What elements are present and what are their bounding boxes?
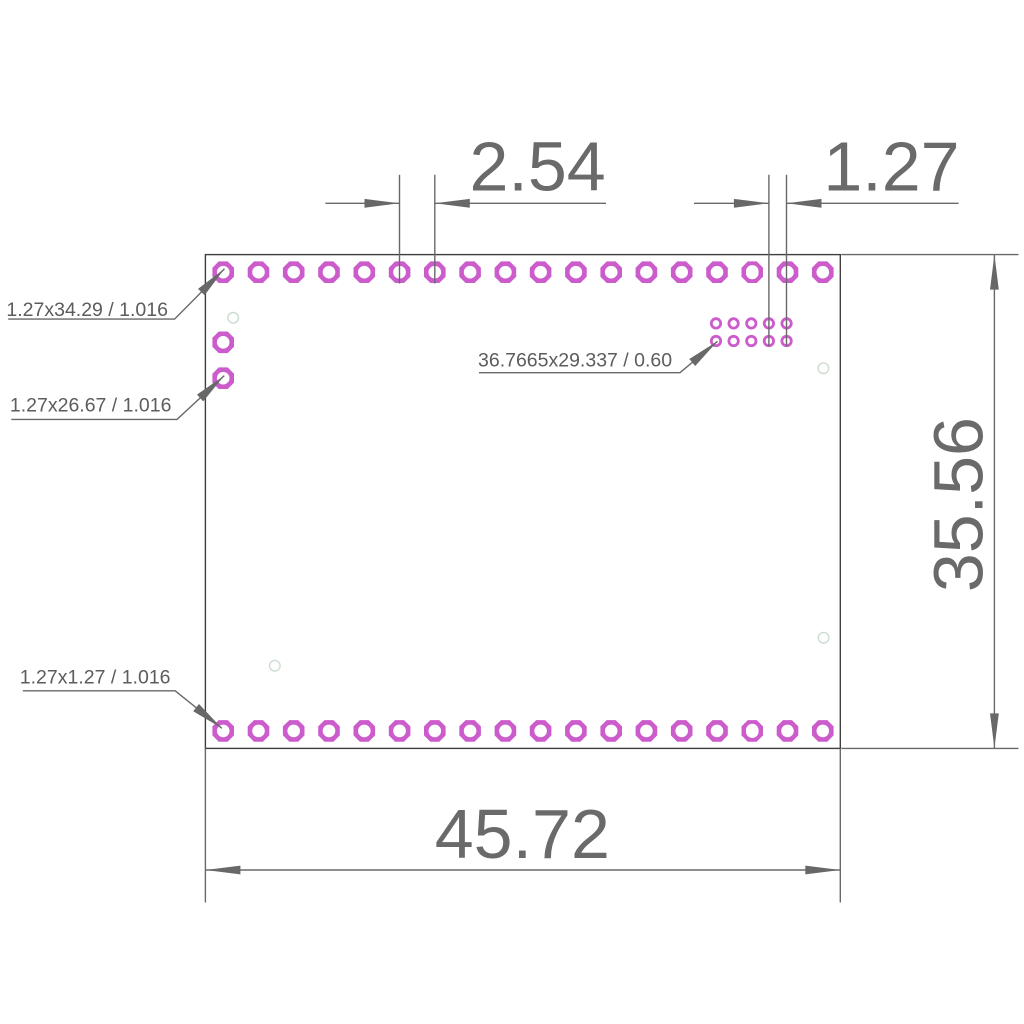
svg-text:45.72: 45.72 bbox=[435, 795, 610, 873]
svg-text:36.7665x29.337 / 0.60: 36.7665x29.337 / 0.60 bbox=[478, 349, 672, 371]
svg-text:35.56: 35.56 bbox=[919, 417, 997, 592]
svg-text:1.27x34.29 / 1.016: 1.27x34.29 / 1.016 bbox=[6, 299, 168, 321]
svg-text:1.27x26.67 / 1.016: 1.27x26.67 / 1.016 bbox=[10, 395, 172, 417]
svg-text:1.27: 1.27 bbox=[823, 127, 959, 205]
svg-text:2.54: 2.54 bbox=[469, 128, 605, 206]
svg-text:1.27x1.27 / 1.016: 1.27x1.27 / 1.016 bbox=[20, 667, 171, 689]
